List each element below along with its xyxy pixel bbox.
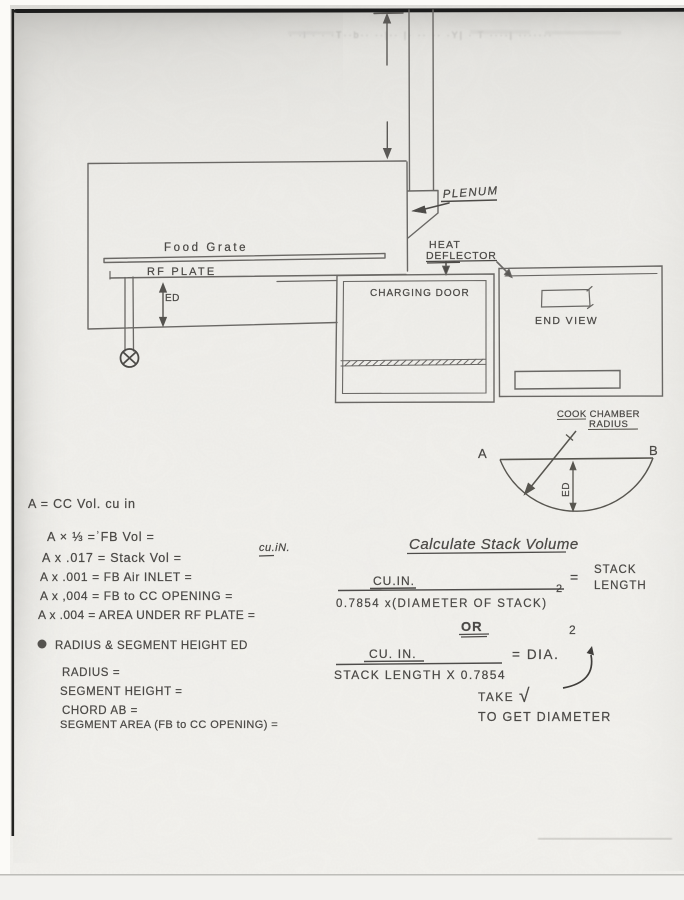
svg-text:A × ⅓ =ʾFB Vol =: A × ⅓ =ʾFB Vol = bbox=[47, 530, 155, 544]
svg-text:RADIUS & SEGMENT HEIGHT ED: RADIUS & SEGMENT HEIGHT ED bbox=[55, 640, 248, 652]
svg-text:= DIA.: = DIA. bbox=[512, 647, 560, 662]
svg-text:SEGMENT AREA (FB to CC OPENING: SEGMENT AREA (FB to CC OPENING) = bbox=[60, 719, 278, 731]
svg-text:0.7854 x(DIAMETER OF STACK): 0.7854 x(DIAMETER OF STACK) bbox=[336, 598, 548, 610]
svg-text:Calculate Stack Volume: Calculate Stack Volume bbox=[409, 536, 579, 553]
svg-text:Food Grate: Food Grate bbox=[164, 242, 248, 254]
svg-text:RADIUS: RADIUS bbox=[589, 419, 629, 430]
svg-text:√: √ bbox=[519, 686, 530, 707]
svg-text:TAKE: TAKE bbox=[478, 690, 514, 704]
svg-text:CHORD AB =: CHORD AB = bbox=[62, 705, 138, 717]
svg-text:A x ,004 = FB to CC OPENING =: A x ,004 = FB to CC OPENING = bbox=[40, 589, 233, 603]
svg-text:RF PLATE: RF PLATE bbox=[147, 266, 216, 278]
svg-text:cu.iN.: cu.iN. bbox=[259, 542, 290, 554]
svg-text:A = CC Vol. cu in: A = CC Vol. cu in bbox=[28, 497, 136, 511]
svg-text:ED: ED bbox=[561, 482, 572, 497]
svg-text:OR: OR bbox=[461, 619, 483, 634]
svg-text:B: B bbox=[649, 443, 658, 458]
svg-text:=: = bbox=[570, 569, 579, 585]
svg-text:A x .017 = Stack Vol =: A x .017 = Stack Vol = bbox=[42, 551, 182, 565]
svg-text:CHARGING DOOR: CHARGING DOOR bbox=[370, 288, 470, 299]
svg-text:LENGTH: LENGTH bbox=[594, 580, 647, 592]
svg-text:CU. IN.: CU. IN. bbox=[369, 647, 417, 661]
svg-text:2: 2 bbox=[556, 583, 563, 595]
svg-text:ED: ED bbox=[165, 293, 180, 304]
svg-text:SEGMENT HEIGHT =: SEGMENT HEIGHT = bbox=[60, 686, 183, 698]
svg-text:RADIUS =: RADIUS = bbox=[62, 667, 120, 679]
svg-text:A x .004 = AREA UNDER RF PLATE: A x .004 = AREA UNDER RF PLATE = bbox=[38, 608, 255, 622]
svg-text:TO GET DIAMETER: TO GET DIAMETER bbox=[478, 710, 612, 724]
svg-text:2: 2 bbox=[569, 623, 576, 637]
svg-text:A x .001 = FB Air INLET =: A x .001 = FB Air INLET = bbox=[40, 570, 192, 584]
svg-text:END VIEW: END VIEW bbox=[535, 315, 598, 327]
svg-text:STACK: STACK bbox=[594, 564, 637, 576]
svg-text:STACK LENGTH X 0.7854: STACK LENGTH X 0.7854 bbox=[334, 668, 506, 682]
svg-text:A: A bbox=[478, 446, 487, 461]
svg-text:CU.IN.: CU.IN. bbox=[373, 574, 415, 588]
